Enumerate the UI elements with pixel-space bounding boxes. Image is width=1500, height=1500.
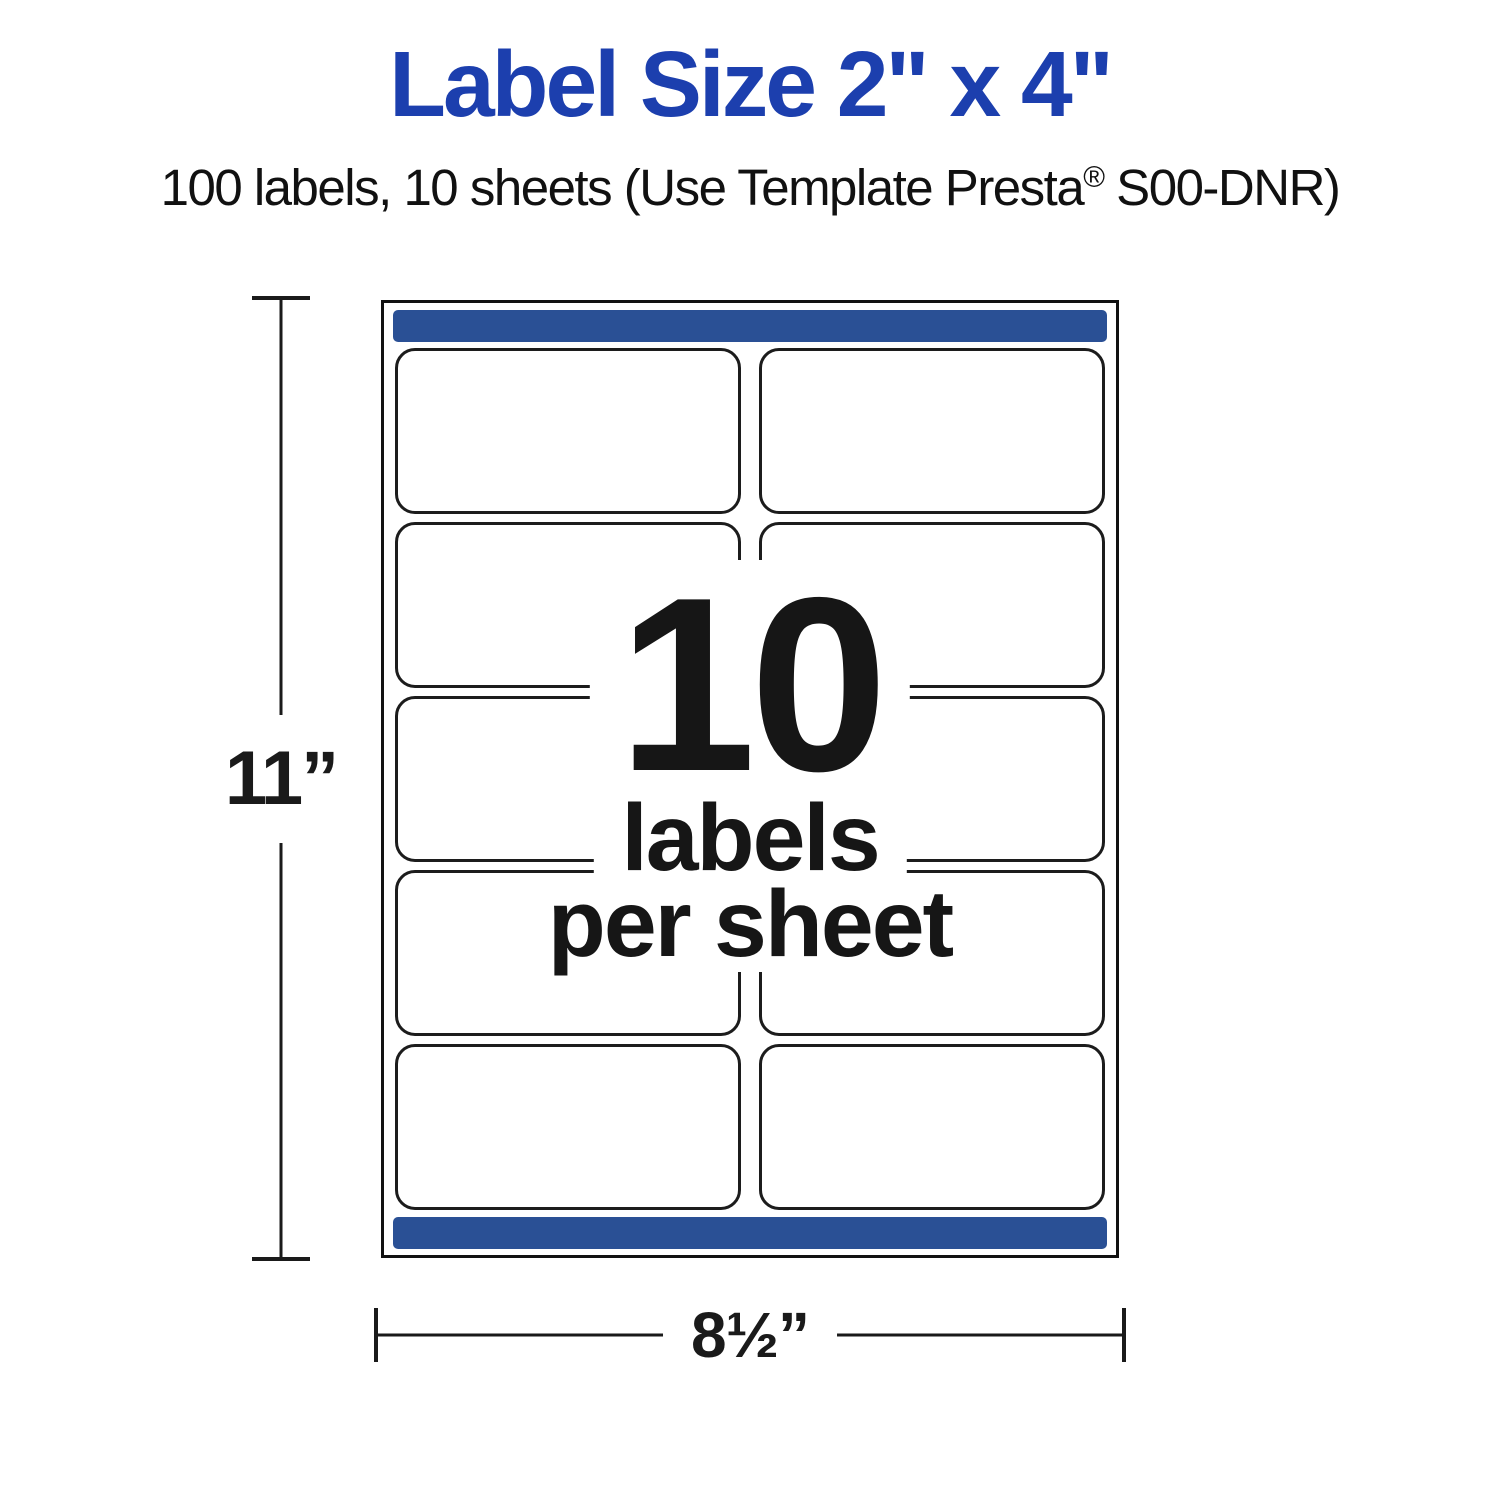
page-title: Label Size 2" x 4" bbox=[0, 38, 1500, 131]
width-dimension-indicator: 8½” bbox=[374, 1308, 1126, 1362]
label-product-diagram: Label Size 2" x 4" 100 labels, 10 sheets… bbox=[0, 0, 1500, 1500]
width-dimension-label: 8½” bbox=[663, 1301, 837, 1369]
labels-per-sheet-callout: 10 labels per sheet bbox=[520, 560, 980, 972]
label-cell bbox=[759, 1044, 1105, 1210]
dimension-end-cap bbox=[252, 1257, 310, 1261]
dimension-end-cap bbox=[1122, 1308, 1126, 1362]
label-cell bbox=[759, 348, 1105, 514]
height-dimension-label: 11” bbox=[221, 715, 341, 843]
registered-trademark-symbol: ® bbox=[1083, 161, 1103, 194]
label-count: 10 bbox=[590, 560, 910, 808]
sheet-bottom-margin-bar bbox=[393, 1217, 1107, 1249]
subtitle-text-tail: S00-DNR) bbox=[1104, 159, 1340, 216]
height-dimension-indicator: 11” bbox=[252, 296, 310, 1261]
label-count-unit-line2: per sheet bbox=[520, 877, 980, 972]
label-cell bbox=[395, 348, 741, 514]
label-sheet-illustration: 10 labels per sheet bbox=[381, 300, 1119, 1258]
subtitle: 100 labels, 10 sheets (Use Template Pres… bbox=[0, 160, 1500, 216]
sheet-top-margin-bar bbox=[393, 310, 1107, 342]
label-cell bbox=[395, 1044, 741, 1210]
subtitle-text: 100 labels, 10 sheets (Use Template Pres… bbox=[161, 159, 1084, 216]
